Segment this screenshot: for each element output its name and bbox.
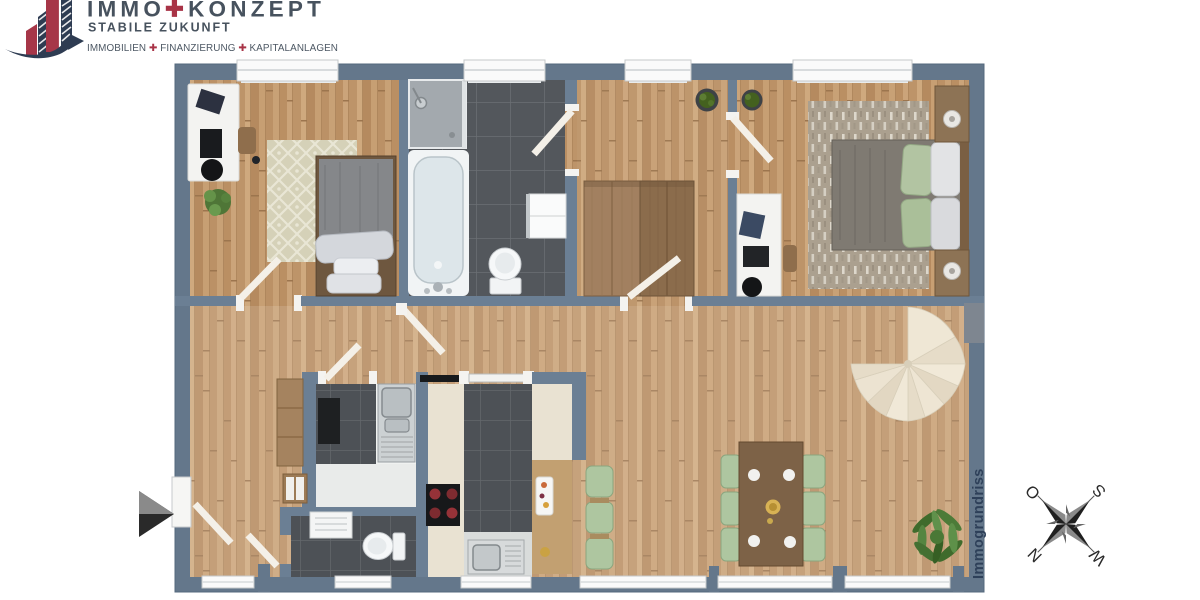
svg-text:Immogrundriss: Immogrundriss: [971, 468, 987, 579]
svg-text:STABILE ZUKUNFT: STABILE ZUKUNFT: [88, 21, 232, 35]
svg-text:IMMOBILIEN ✚ FINANZIERUNG ✚ KA: IMMOBILIEN ✚ FINANZIERUNG ✚ KAPITALANLAG…: [87, 43, 338, 54]
svg-text:IMMO✚KONZEPT: IMMO✚KONZEPT: [87, 0, 325, 22]
